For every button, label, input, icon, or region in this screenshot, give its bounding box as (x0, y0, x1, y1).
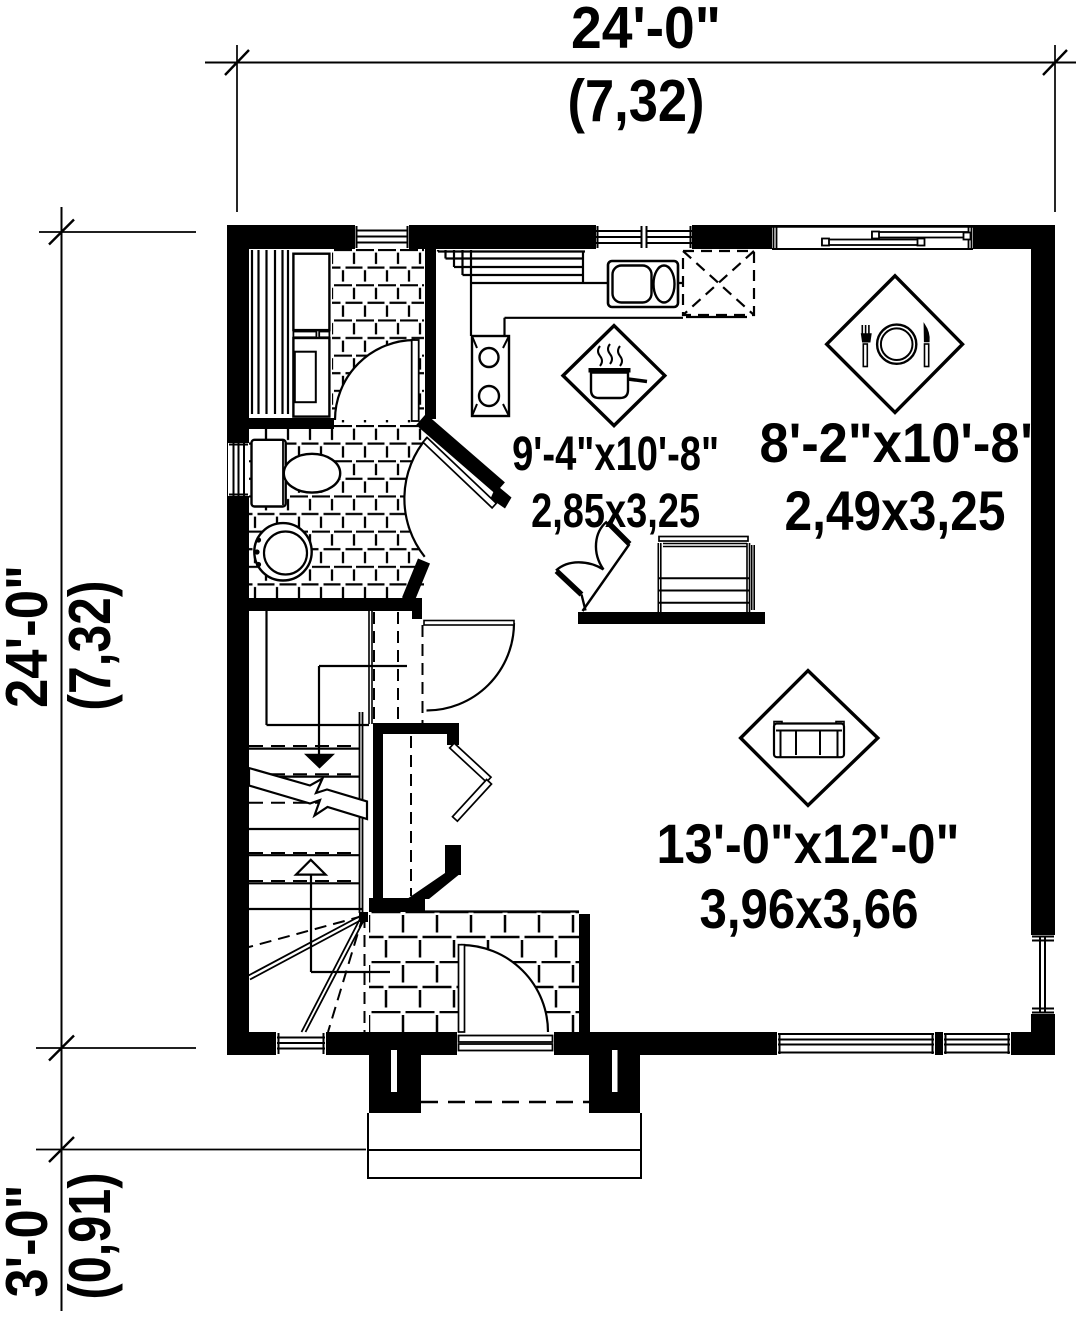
svg-text:3,96x3,66: 3,96x3,66 (700, 877, 919, 940)
svg-text:24'-0": 24'-0" (0, 565, 60, 708)
svg-text:3'-0": 3'-0" (0, 1185, 60, 1298)
svg-text:2,85x3,25: 2,85x3,25 (531, 485, 700, 538)
svg-text:(7,32): (7,32) (57, 581, 123, 711)
svg-text:2,49x3,25: 2,49x3,25 (785, 479, 1006, 542)
svg-text:9'-4"x10'-8": 9'-4"x10'-8" (512, 428, 719, 481)
svg-text:8'-2"x10'-8": 8'-2"x10'-8" (760, 411, 1045, 474)
svg-text:(0,91): (0,91) (57, 1173, 123, 1300)
svg-text:(7,32): (7,32) (568, 68, 705, 134)
svg-text:24'-0": 24'-0" (571, 0, 721, 61)
svg-text:13'-0"x12'-0": 13'-0"x12'-0" (657, 812, 960, 875)
